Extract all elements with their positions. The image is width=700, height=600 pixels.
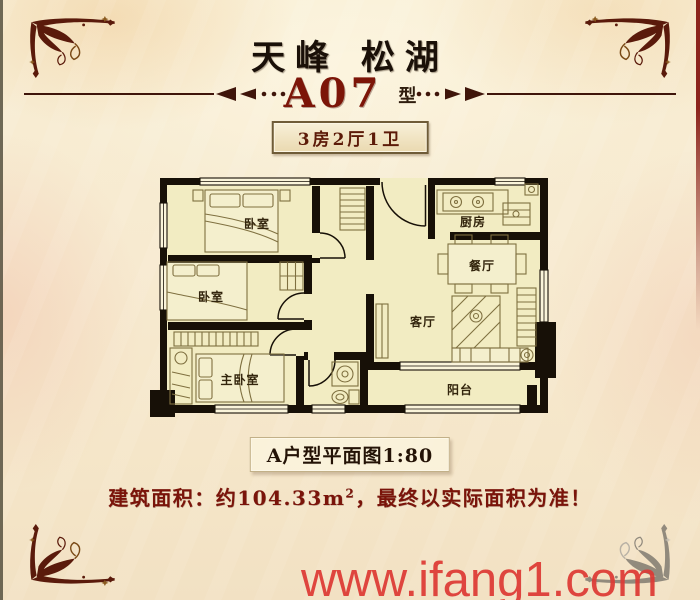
unit-code: A07 (284, 70, 383, 117)
unit-code-row: A07型 (0, 70, 700, 117)
plan-caption: A户型平面图1:80 (250, 437, 450, 472)
area-note-superscript: 2 (345, 486, 355, 500)
room-label-dining: 餐厅 (469, 258, 495, 273)
sofa-symbol (452, 348, 528, 362)
corner-flourish-bottom-left-icon (27, 524, 119, 586)
room-label-living: 客厅 (409, 314, 436, 329)
room-label-bedroom-2: 卧室 (198, 289, 224, 304)
flyer-page: 天峰 松湖 A07型 3房2厅1卫 (0, 0, 700, 600)
room-label-kitchen: 厨房 (460, 214, 486, 229)
bedroom1-bed-symbol (193, 190, 290, 252)
room-label-bedroom-1: 卧室 (244, 216, 270, 231)
room-label-master-bedroom: 主卧室 (220, 372, 259, 387)
watermark-url: www.ifang1.com (301, 552, 658, 600)
floorplan-drawing: 卧室 卧室 主卧室 厨房 餐厅 客厅 阳台 (140, 164, 570, 426)
layout-badge: 3房2厅1卫 (272, 121, 429, 154)
area-note: 建筑面积：约104.33m2，最终以实际面积为准！ (0, 482, 700, 511)
column-balcony (527, 385, 537, 405)
area-note-suffix: ，最终以实际面积为准！ (355, 486, 592, 510)
area-note-prefix: 建筑面积：约104.33m (108, 486, 345, 510)
unit-suffix: 型 (398, 86, 416, 107)
room-label-balcony: 阳台 (447, 382, 473, 397)
